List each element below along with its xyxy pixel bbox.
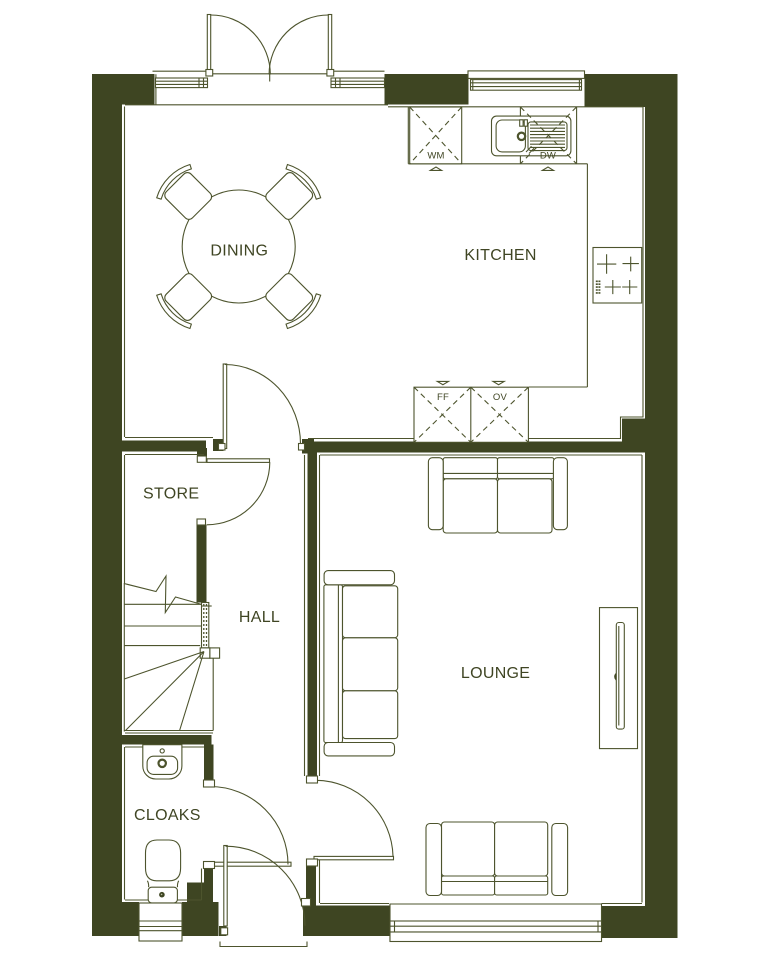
- svg-text:DW: DW: [540, 151, 556, 162]
- svg-text:WM: WM: [427, 151, 444, 162]
- svg-text:OV: OV: [493, 392, 508, 403]
- svg-text:FF: FF: [437, 392, 449, 403]
- svg-text:STORE: STORE: [143, 485, 199, 502]
- svg-text:DINING: DINING: [210, 243, 268, 260]
- svg-text:LOUNGE: LOUNGE: [461, 665, 530, 682]
- svg-text:CLOAKS: CLOAKS: [134, 807, 201, 824]
- svg-text:KITCHEN: KITCHEN: [464, 247, 536, 264]
- svg-text:HALL: HALL: [239, 609, 280, 626]
